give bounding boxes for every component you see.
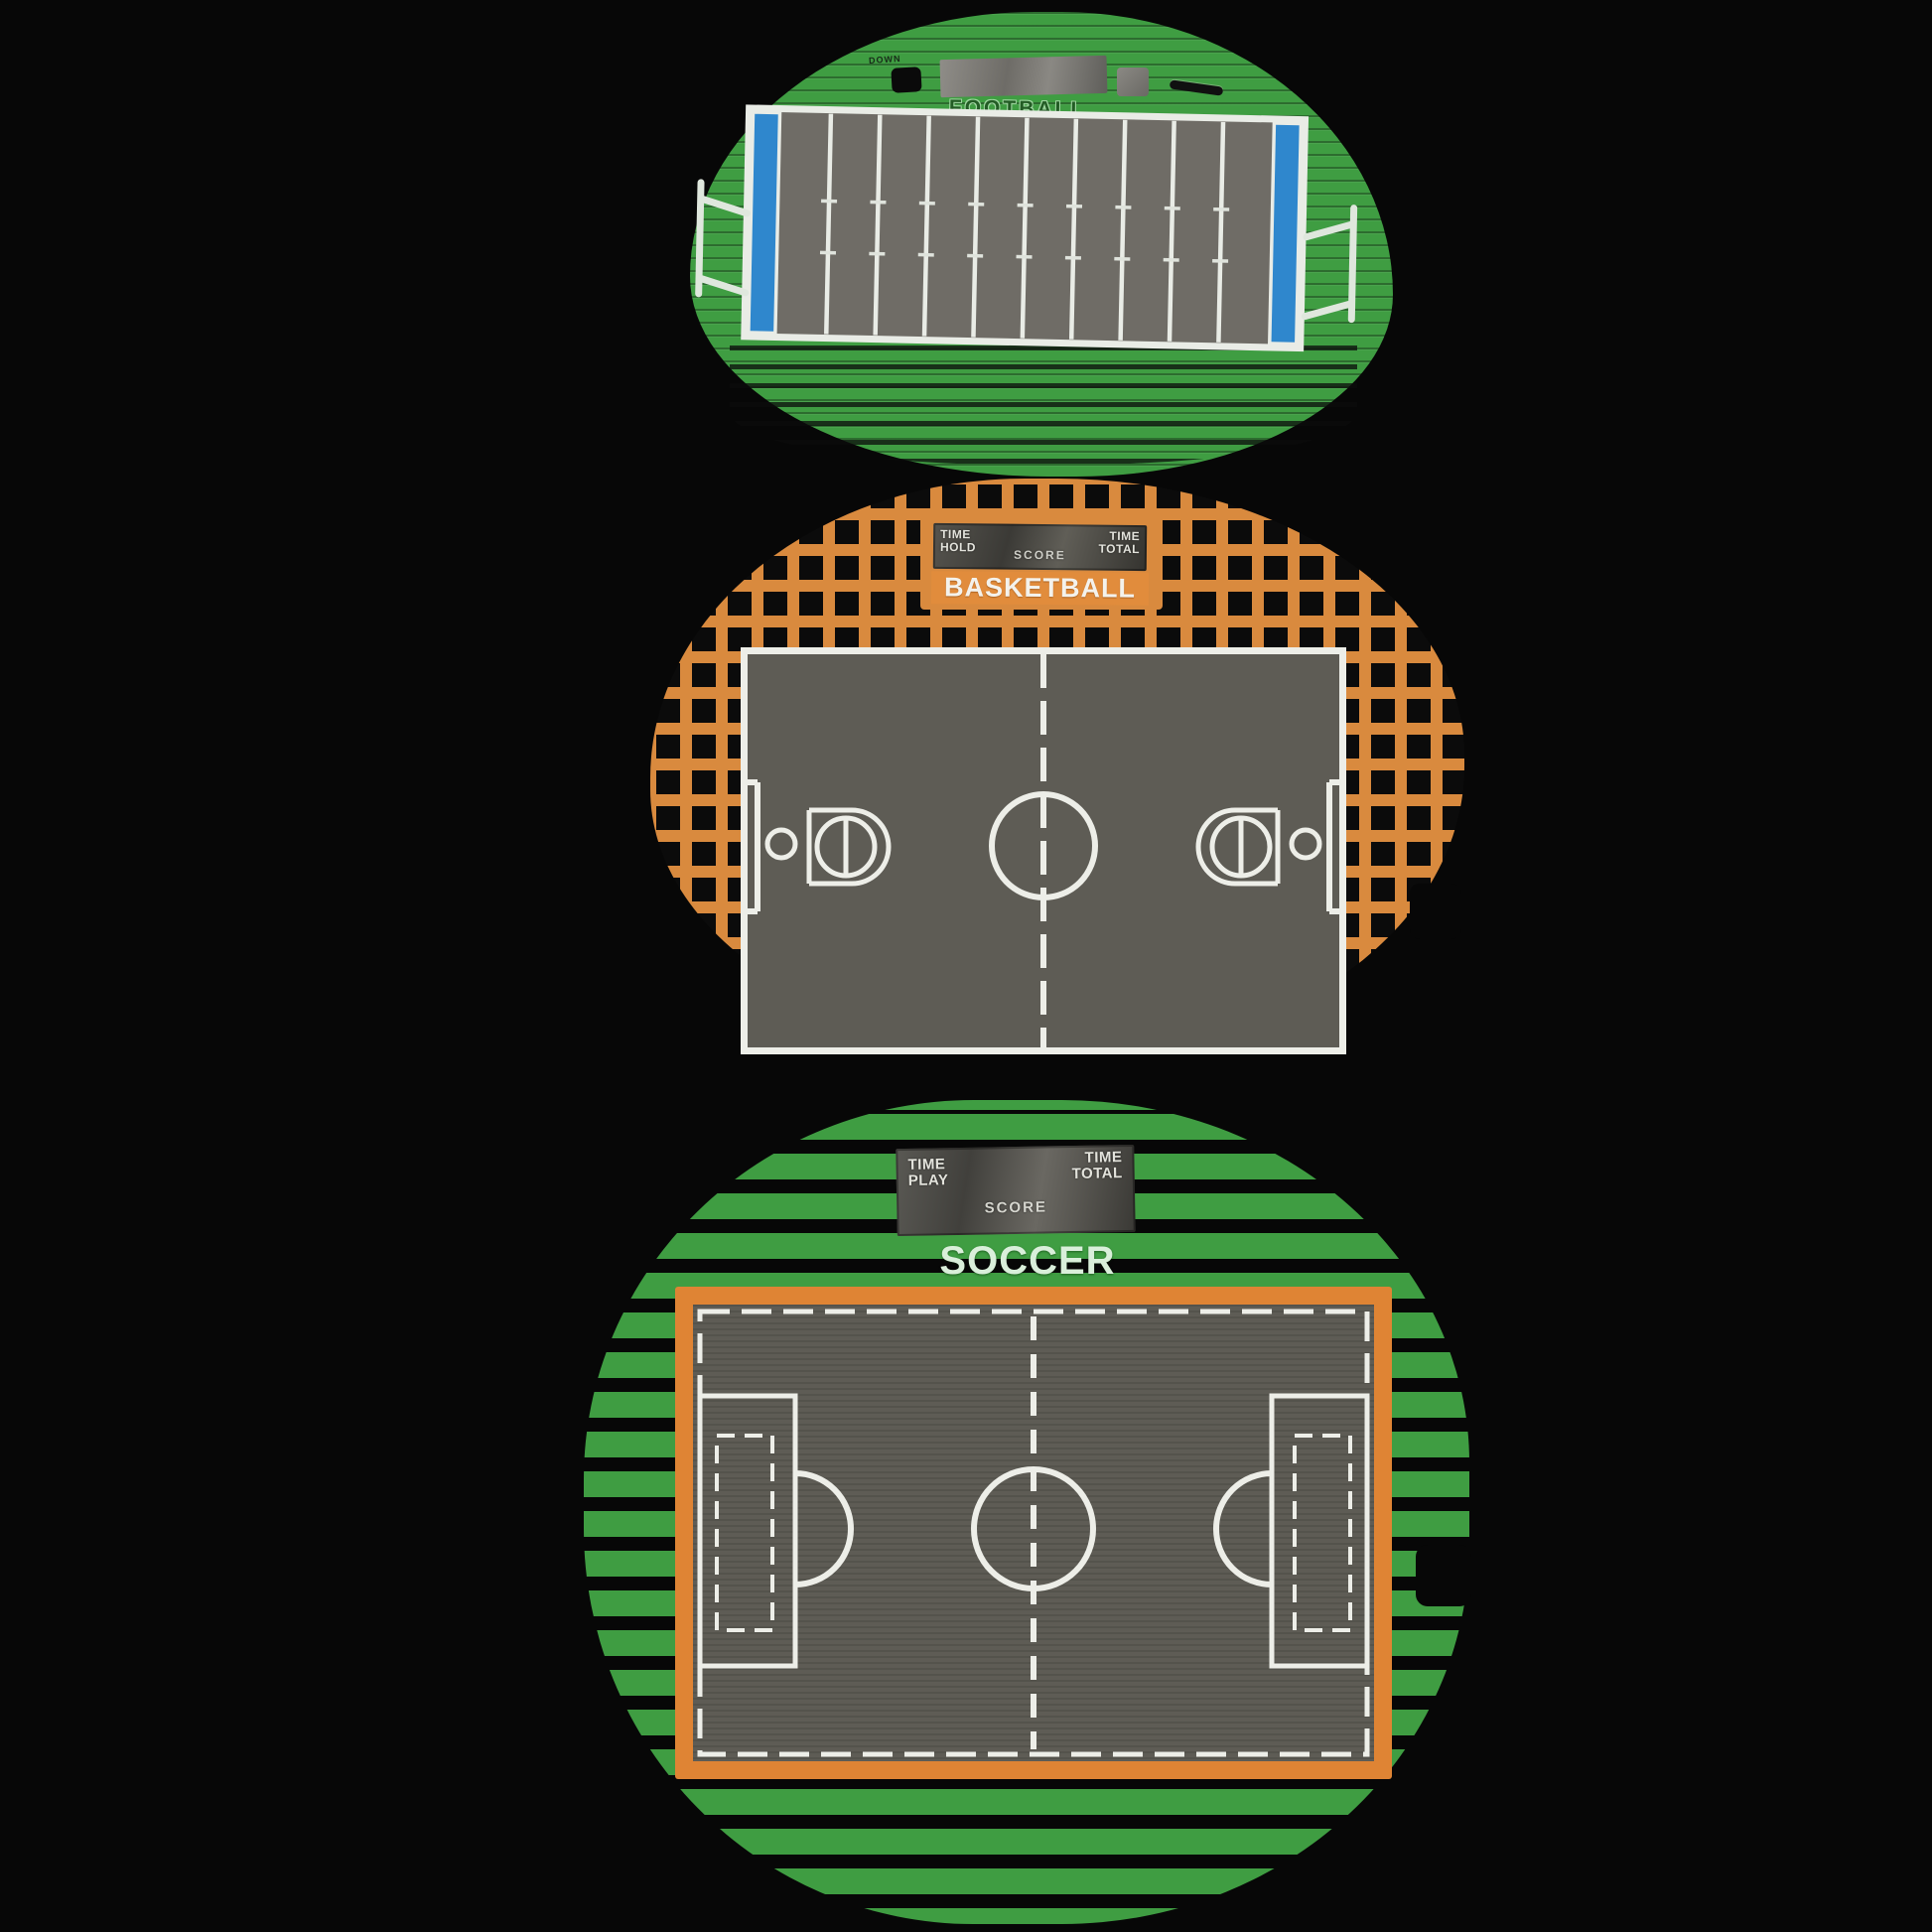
soccer-overlay-board: TIME PLAY TIME TOTAL SCORE SOCCER bbox=[584, 1100, 1469, 1924]
end-zone-left bbox=[749, 112, 780, 334]
basketball-title-bar: BASKETBALL bbox=[931, 571, 1149, 606]
basketball-title: BASKETBALL bbox=[944, 572, 1136, 604]
basketball-scoreboard-window: TIME HOLD TIME TOTAL SCORE bbox=[933, 523, 1147, 571]
left-goal-post bbox=[699, 183, 748, 295]
penalty-area-right bbox=[1216, 1396, 1367, 1666]
football-aux-window bbox=[1117, 68, 1149, 96]
basketball-court bbox=[741, 647, 1346, 1054]
end-zone-right bbox=[1270, 123, 1302, 345]
photo-canvas: { "scene": { "description": "Photo of th… bbox=[0, 0, 1932, 1932]
football-vent-slot bbox=[1170, 79, 1224, 95]
soccer-edge-notch bbox=[1416, 1545, 1471, 1606]
football-overlay-board: DOWN FOOTBALL bbox=[690, 12, 1393, 477]
score-label: SCORE bbox=[933, 548, 1147, 563]
football-field bbox=[687, 99, 1387, 372]
soccer-field-frame bbox=[675, 1287, 1392, 1779]
down-window-cutout bbox=[891, 67, 921, 93]
penalty-area-left bbox=[700, 1396, 851, 1666]
down-window-label: DOWN bbox=[869, 52, 929, 66]
soccer-pitch bbox=[693, 1305, 1374, 1761]
right-goal-post bbox=[1305, 207, 1353, 320]
basketball-overlay-board: TIME HOLD TIME TOTAL SCORE BASKETBALL bbox=[650, 479, 1464, 1054]
football-scoreboard-window bbox=[940, 56, 1108, 97]
soccer-scoreboard-window: TIME PLAY TIME TOTAL SCORE bbox=[896, 1145, 1135, 1236]
time-play-label: TIME PLAY bbox=[907, 1157, 948, 1188]
soccer-pitch-lines bbox=[693, 1305, 1374, 1761]
time-total-label: TIME TOTAL bbox=[1071, 1150, 1123, 1181]
score-label: SCORE bbox=[897, 1198, 1135, 1218]
basketball-edge-notch bbox=[1410, 884, 1461, 939]
soccer-title: SOCCER bbox=[829, 1239, 1226, 1284]
